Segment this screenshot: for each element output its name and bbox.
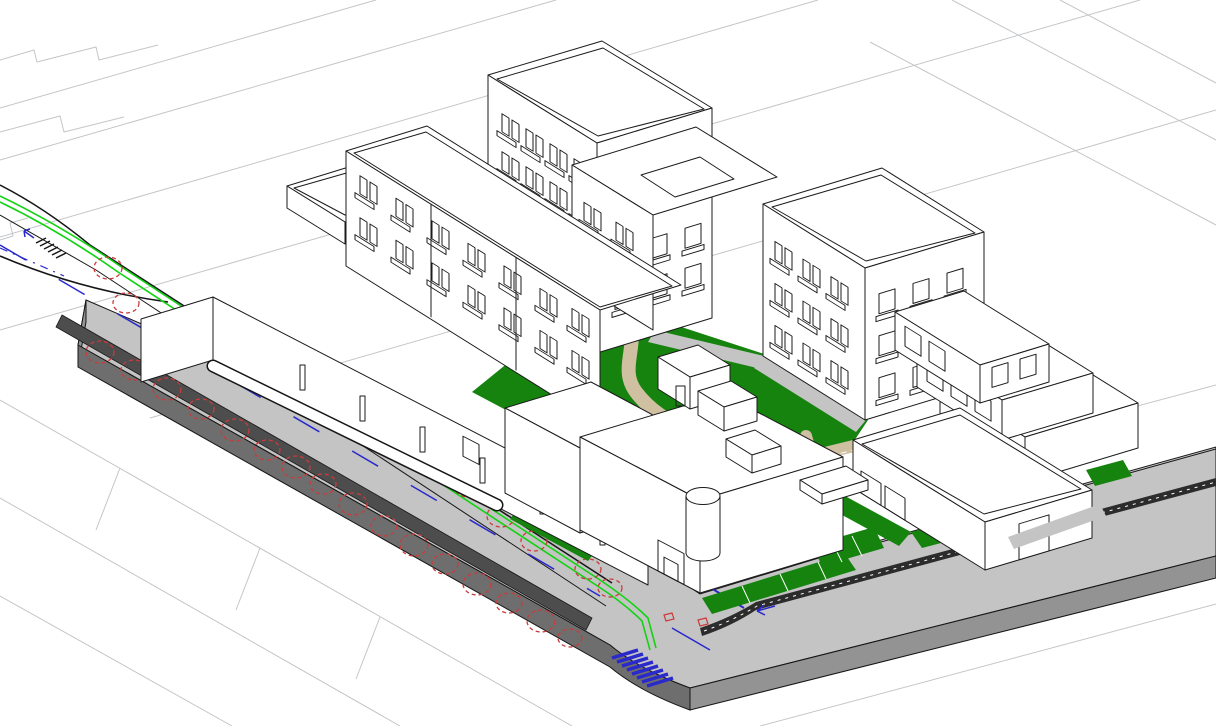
stair-cylinder-top <box>686 488 720 505</box>
stair-cylinder <box>686 496 720 561</box>
site-axonometric-drawing <box>0 0 1216 726</box>
cad-viewport <box>0 0 1216 726</box>
